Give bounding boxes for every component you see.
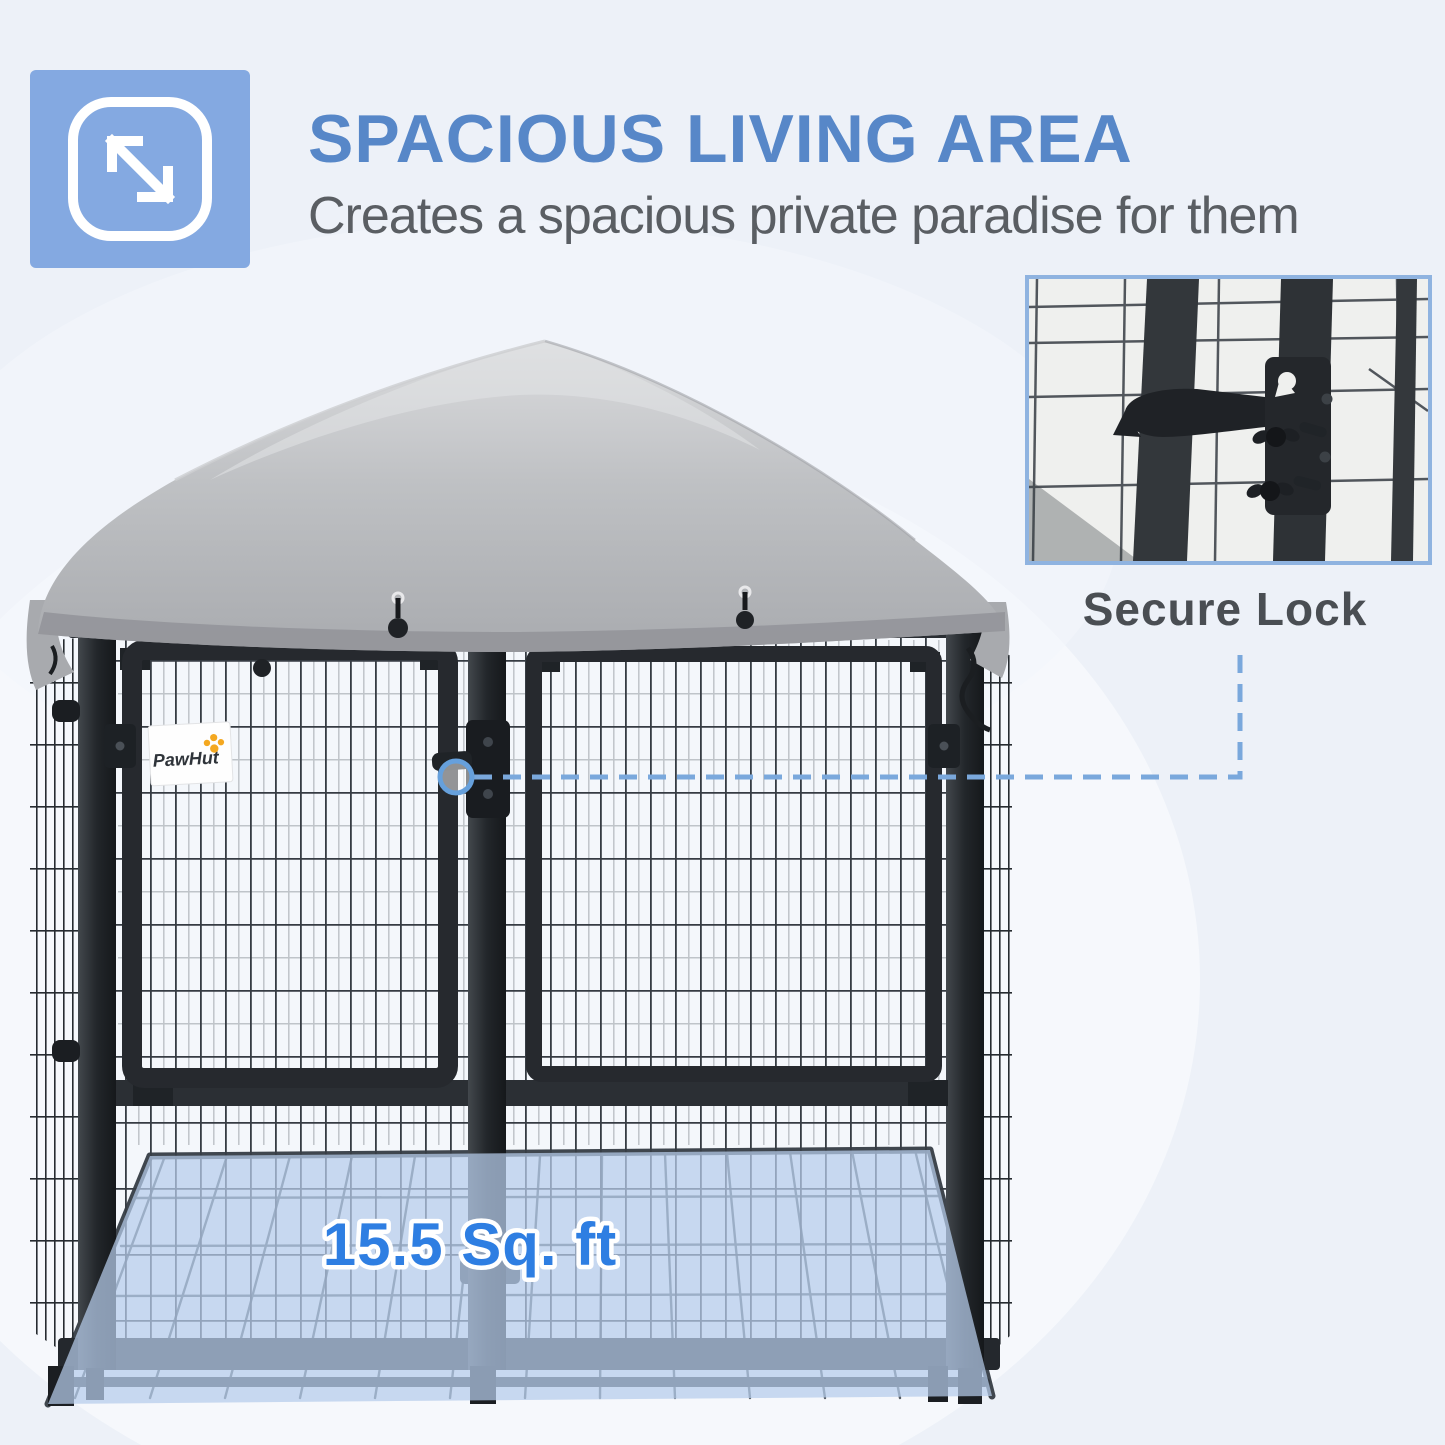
section-title: SPACIOUS LIVING AREA: [308, 100, 1133, 178]
secure-lock-label: Secure Lock: [1015, 582, 1435, 636]
section-subtitle: Creates a spacious private paradise for …: [308, 186, 1299, 246]
expand-icon-tile: [30, 70, 250, 268]
lock-highlight-circle: [440, 761, 472, 793]
hinge-knob: [52, 1040, 80, 1062]
right-side-mesh: [983, 646, 1012, 1360]
hinge-knob: [52, 700, 80, 722]
secure-lock-inset-image: [1025, 275, 1432, 565]
brand-label: PawHut: [148, 722, 233, 786]
floor-area-label: 15.5 Sq. ft: [323, 1211, 617, 1278]
left-side-mesh: [30, 638, 78, 1362]
product-feature-image: PawHut: [0, 0, 1445, 1445]
lock-closeup-photo: [1029, 279, 1428, 561]
brand-label-text: PawHut: [152, 747, 220, 770]
expand-arrows-icon: [65, 94, 215, 244]
